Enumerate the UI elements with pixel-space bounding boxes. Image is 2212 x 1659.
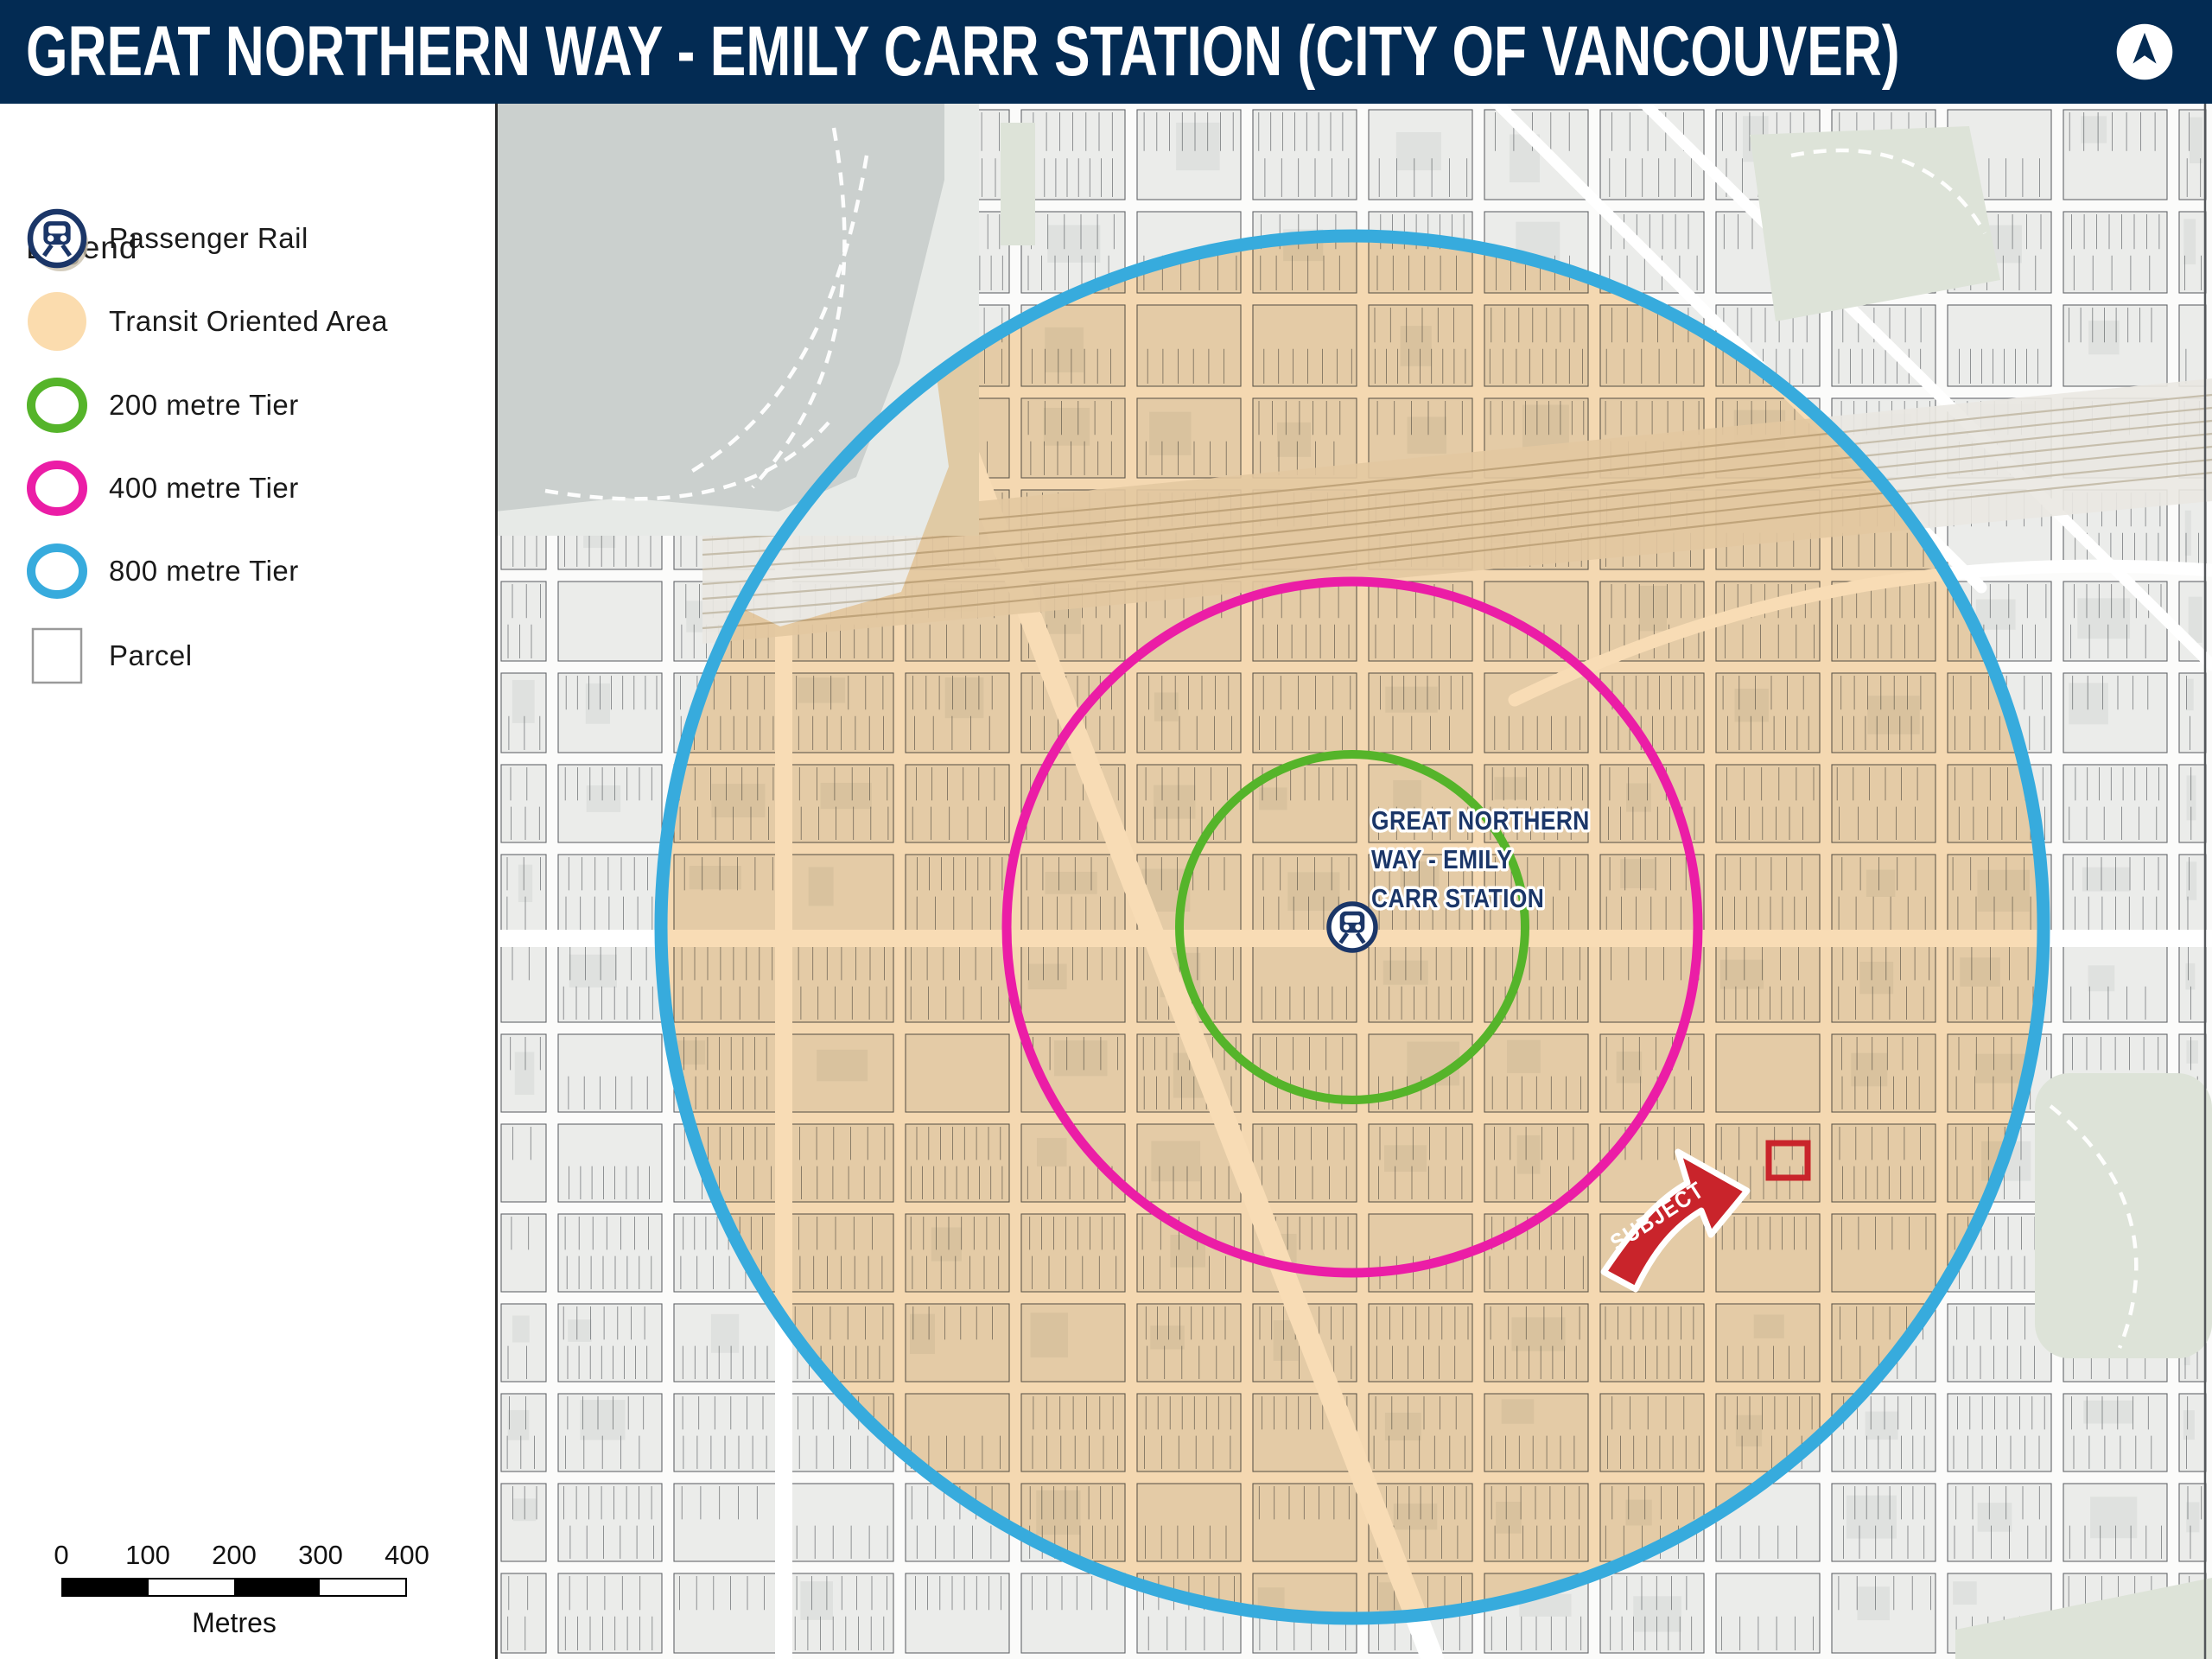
legend-item-parcel: Parcel	[17, 622, 193, 690]
map-view: GREAT NORTHERN WAY - EMILY CARR STATION …	[495, 104, 2212, 1659]
legend-item-400-metre-tier: 400 metre Tier	[17, 454, 299, 522]
scale-tick: 200	[212, 1540, 257, 1571]
legend-item-800-metre-tier: 800 metre Tier	[17, 537, 299, 605]
transit-oriented-area-swatch	[17, 285, 97, 358]
page: GREAT NORTHERN WAY - EMILY CARR STATION …	[0, 0, 2212, 1659]
legend-item-label: 200 metre Tier	[109, 389, 299, 422]
legend-panel: Legend Passenger Rail Transit Oriented A…	[0, 104, 495, 1659]
tier-400-ring-swatch	[17, 452, 97, 524]
legend-item-label: Transit Oriented Area	[109, 305, 388, 338]
legend-item-passenger-rail: Passenger Rail	[17, 205, 308, 272]
legend-item-label: 800 metre Tier	[109, 555, 299, 588]
legend-item-200-metre-tier: 200 metre Tier	[17, 372, 299, 439]
scale-tick: 300	[298, 1540, 343, 1571]
tier-800-ring-swatch	[17, 535, 97, 607]
tier-200-ring-swatch	[17, 369, 97, 442]
station-label-line: GREAT NORTHERN	[1371, 806, 1590, 836]
passenger-rail-icon	[17, 202, 97, 275]
station-icon	[1329, 904, 1376, 950]
scale-unit-label: Metres	[61, 1607, 407, 1639]
legend-item-label: 400 metre Tier	[109, 472, 299, 505]
scale-tick: 100	[125, 1540, 170, 1571]
station-label-line: CARR STATION	[1371, 884, 1544, 913]
parcel-swatch	[17, 620, 97, 692]
header-bar: GREAT NORTHERN WAY - EMILY CARR STATION …	[0, 0, 2212, 104]
scale-bar-segments	[61, 1578, 407, 1597]
north-arrow-icon	[2115, 22, 2174, 81]
scale-tick: 400	[385, 1540, 429, 1571]
legend-item-transit-oriented-area: Transit Oriented Area	[17, 288, 388, 355]
scale-tick: 0	[54, 1540, 68, 1571]
legend-item-label: Parcel	[109, 639, 193, 672]
page-title: GREAT NORTHERN WAY - EMILY CARR STATION …	[26, 11, 2212, 92]
map-canvas: GREAT NORTHERN WAY - EMILY CARR STATION …	[495, 104, 2212, 1659]
station-label-line: WAY - EMILY	[1371, 845, 1512, 874]
legend-item-label: Passenger Rail	[109, 222, 308, 255]
